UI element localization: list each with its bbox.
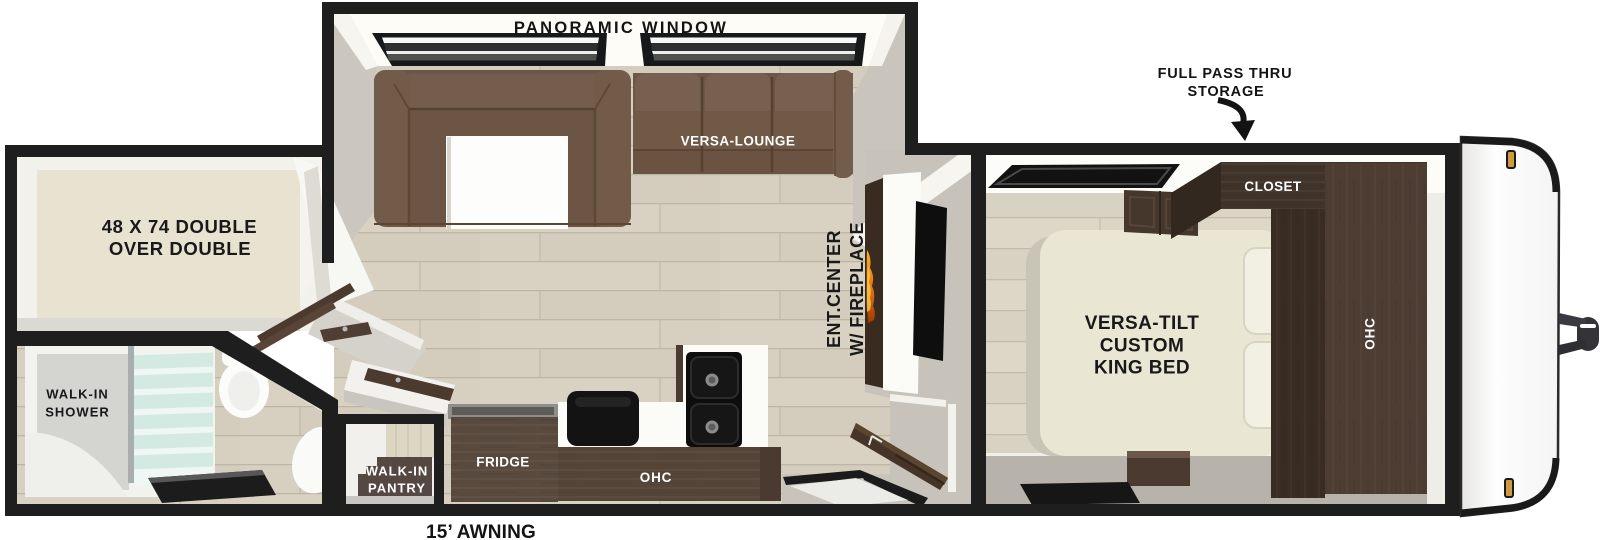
svg-text:PANORAMIC WINDOW: PANORAMIC WINDOW bbox=[514, 19, 728, 37]
svg-text:WALK-IN: WALK-IN bbox=[46, 387, 109, 402]
svg-text:PANTRY: PANTRY bbox=[368, 481, 426, 496]
svg-text:OHC: OHC bbox=[1363, 317, 1378, 349]
svg-text:FULL PASS THRU: FULL PASS THRU bbox=[1158, 66, 1293, 82]
svg-text:VERSA-TILT: VERSA-TILT bbox=[1085, 313, 1199, 334]
svg-text:FRIDGE: FRIDGE bbox=[476, 455, 529, 470]
svg-text:STORAGE: STORAGE bbox=[1187, 84, 1264, 100]
svg-text:48 X 74 DOUBLE: 48 X 74 DOUBLE bbox=[102, 216, 257, 237]
svg-text:WALK-IN: WALK-IN bbox=[366, 464, 429, 479]
svg-text:KING BED: KING BED bbox=[1094, 357, 1190, 378]
svg-text:ENT.CENTER: ENT.CENTER bbox=[824, 230, 844, 348]
svg-text:OHC: OHC bbox=[640, 470, 672, 485]
svg-text:15’ AWNING: 15’ AWNING bbox=[426, 522, 536, 540]
svg-text:OVER DOUBLE: OVER DOUBLE bbox=[109, 238, 251, 259]
svg-text:CLOSET: CLOSET bbox=[1244, 179, 1302, 194]
svg-text:SHOWER: SHOWER bbox=[45, 405, 110, 420]
svg-text:CUSTOM: CUSTOM bbox=[1100, 335, 1184, 356]
svg-text:W/ FIREPLACE: W/ FIREPLACE bbox=[847, 222, 867, 356]
svg-text:VERSA-LOUNGE: VERSA-LOUNGE bbox=[681, 134, 796, 149]
